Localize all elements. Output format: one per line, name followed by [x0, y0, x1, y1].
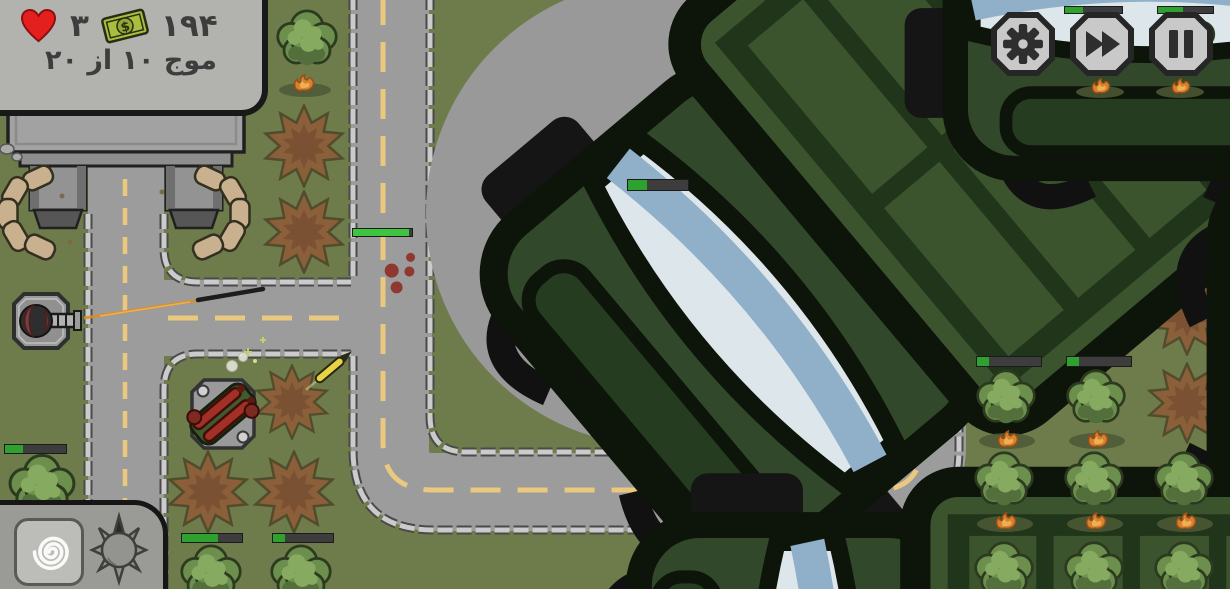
settings-button[interactable]: [991, 12, 1055, 76]
hud-stats-row: ۳ $ ۱۹۴: [0, 0, 262, 44]
pause-icon: [1161, 24, 1201, 64]
health-bar-turning-truck: [352, 228, 413, 237]
mine-ability-button[interactable]: [84, 508, 154, 589]
control-buttons: [991, 12, 1213, 76]
money-value: ۱۹۴: [161, 8, 218, 44]
wave-counter: موج ۱۰ از ۲۰: [0, 45, 262, 76]
health-bar-west-tree: [4, 444, 67, 454]
hud-panel: ۳ $ ۱۹۴ موج ۱۰ از ۲۰: [0, 0, 268, 116]
fast-forward-icon: [1082, 24, 1122, 64]
health-bar-south-tree-2: [272, 533, 334, 543]
cash-icon: $: [98, 3, 151, 49]
health-bar-south-tree-1: [181, 533, 243, 543]
health-bar-east-tree-1: [976, 356, 1042, 367]
lives-value: ۳: [70, 8, 89, 44]
fast-forward-button[interactable]: [1070, 12, 1134, 76]
game-screen: ۳ $ ۱۹۴ موج ۱۰ از ۲۰: [0, 0, 1230, 589]
abilities-panel: [0, 500, 168, 589]
pause-button[interactable]: [1149, 12, 1213, 76]
truck-west-bound-bottom: [610, 473, 1230, 589]
whirlwind-ability-button[interactable]: [14, 518, 84, 586]
health-bar-rock: [627, 179, 689, 191]
gear-icon: [1002, 23, 1044, 65]
health-bar-east-tree-2: [1066, 356, 1132, 367]
spiral-icon: [20, 524, 78, 580]
heart-icon: [20, 9, 57, 44]
mine-icon: [84, 508, 154, 589]
